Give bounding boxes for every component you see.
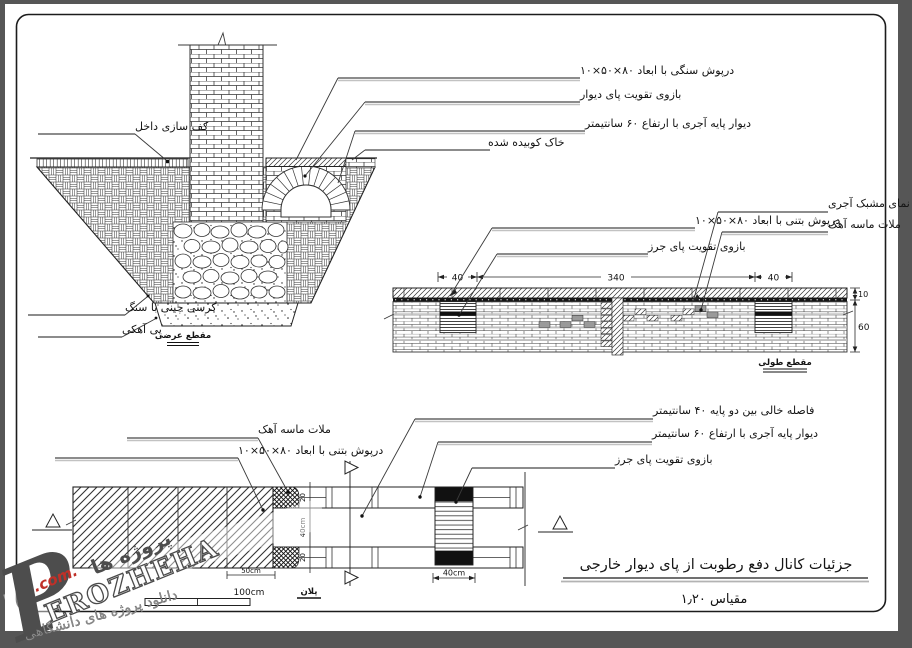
title-block: جزئیات کانال دفع رطوبت از پای دیوار خارج… — [561, 557, 869, 607]
ls-dim-middle: 340 — [607, 274, 624, 284]
leader-dot — [166, 160, 169, 163]
ls-dim-cap-h: 10 — [858, 290, 868, 299]
sheet-scale: مقیاس ۱٫۲۰ — [681, 592, 748, 607]
leader-dot — [418, 495, 421, 498]
concrete-cap-band — [393, 288, 847, 298]
leader-dot — [155, 317, 158, 320]
cs-label-arm: بازوی تقویت پای دیوار — [579, 88, 681, 101]
ls-label-pier-arm: بازوی تقویت پای جرز — [647, 240, 746, 253]
brick-wall-column — [190, 45, 263, 222]
cs-caption: مقطع عرضی — [155, 331, 211, 341]
stone-cap-strip — [266, 158, 346, 167]
leader-dot — [360, 514, 363, 517]
right-soil-strip — [346, 159, 375, 168]
leader-dot — [457, 313, 460, 316]
long-section-view: 40 340 40 10 60 درپوش بتنی با ابعاد — [384, 196, 910, 372]
cs-label-stone-cap: درپوش سنگی با ابعاد ۸۰×۵۰×۱۰ — [580, 64, 734, 77]
ls-dim-left: 40 — [452, 274, 464, 284]
pier-arm-body — [435, 501, 473, 551]
pl-dim-cap-segment: 50cm — [241, 567, 261, 575]
pl-dim-row-bottom: 20 — [299, 553, 307, 562]
cs-label-stone-course: کرسی چینی با سنگ — [125, 301, 217, 314]
ls-label-concrete-cap: درپوش بتنی با ابعاد ۸۰×۵۰×۱۰ — [695, 214, 840, 227]
pl-label-pier-arm: بازوی تقویت پای جرز — [614, 453, 713, 466]
cs-label-interior-floor: کف سازی داخل — [135, 120, 209, 133]
datum-triangle-left — [46, 514, 60, 527]
leader-dot — [286, 490, 289, 493]
lattice-pier-right — [755, 302, 792, 333]
datum-triangle-right — [553, 516, 567, 529]
leader-dot — [699, 308, 702, 311]
ls-dim-right: 40 — [768, 274, 780, 284]
pl-caption: پلان — [301, 587, 318, 597]
leader-dot — [147, 295, 150, 298]
sheet-title: جزئیات کانال دفع رطوبت از پای دیوار خارج… — [580, 557, 853, 573]
pl-label-base-wall: دیوار پایه آجری با ارتفاع ۶۰ سانتیمتر — [651, 426, 818, 440]
mortar-patch-bottom — [273, 547, 299, 568]
drawing-sheet: { "cross_section": { "caption": "مقطع عر… — [0, 0, 912, 648]
ls-label-brick-lattice: نمای مشبک آجری — [828, 196, 910, 210]
pier-arm-top-block — [435, 487, 473, 501]
cs-label-base-wall: دیوار پایه آجری با ارتفاع ۶۰ سانتیمتر — [584, 116, 751, 130]
lattice-pier-right-band — [755, 312, 792, 316]
pl-dim-pier: 40cm — [443, 569, 466, 578]
pl-dim-row-top: 20 — [299, 493, 307, 502]
cs-label-compacted-soil: خاک کوبیده شده — [488, 136, 565, 149]
leader-dot — [454, 500, 457, 503]
cad-drawing: درپوش سنگی با ابعاد ۸۰×۵۰×۱۰ بازوی تقویت… — [0, 0, 912, 648]
mortar-patch-top — [273, 487, 299, 508]
pier-arm-bottom-block — [435, 551, 473, 565]
cs-caption-underline — [167, 343, 199, 346]
leader-dot — [303, 174, 306, 177]
ls-caption-underline — [763, 369, 807, 372]
pl-label-gap: فاصله خالی بین دو پایه ۴۰ سانتیمتر — [652, 404, 814, 417]
ls-caption: مقطع طولی — [758, 358, 812, 368]
lattice-pier-left — [440, 302, 476, 333]
pl-label-concrete-cap: درپوش بتنی با ابعاد ۸۰×۵۰×۱۰ — [238, 444, 383, 457]
interior-floor-strip — [37, 159, 188, 167]
label-underlines-gray — [338, 81, 585, 134]
leader-dot — [261, 508, 264, 511]
pl-label-lime-mortar: ملات ماسه آهک — [258, 422, 331, 436]
ls-label-lime-mortar: ملات ماسه آهک — [828, 217, 901, 231]
ls-dim-wall-h: 60 — [858, 323, 870, 333]
scale-bar-label: 100cm — [234, 588, 265, 598]
pier-section-strip — [612, 298, 623, 355]
